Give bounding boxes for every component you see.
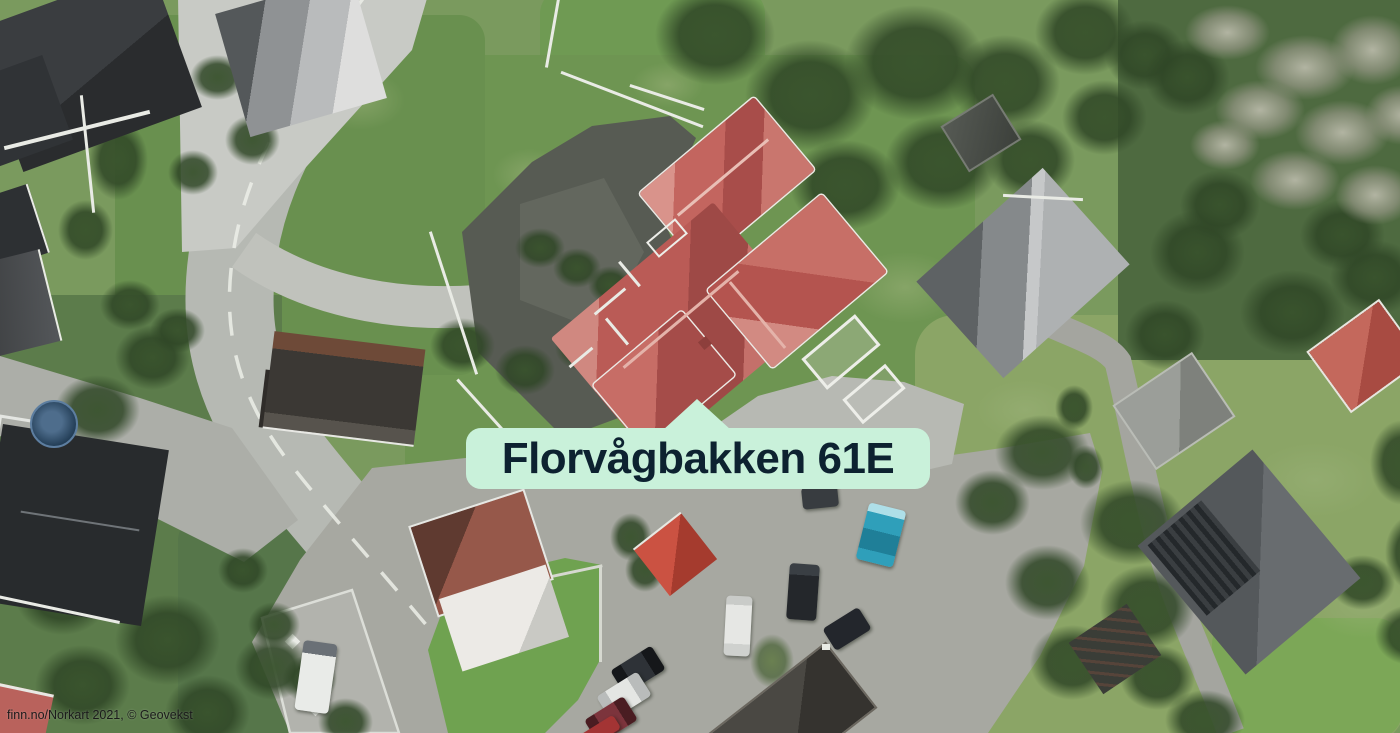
shrub xyxy=(1005,545,1090,620)
hedge-roadside xyxy=(218,548,268,593)
hedge-lane xyxy=(1055,385,1093,430)
rock-outcrop xyxy=(1185,5,1270,60)
hedge-roadside xyxy=(248,602,300,648)
building-black-house xyxy=(0,424,169,626)
rock-outcrop xyxy=(1190,120,1260,170)
building-dark-brown-house xyxy=(263,331,426,447)
garden-bush xyxy=(495,345,555,395)
aerial-map-canvas[interactable]: Florvågbakken 61E finn.no/Norkart 2021, … xyxy=(0,0,1400,733)
white-bus xyxy=(723,595,752,656)
garden-bush xyxy=(150,308,205,353)
driveway-branch xyxy=(244,250,478,307)
dark-van xyxy=(786,563,820,621)
marker-pointer-icon xyxy=(663,399,731,430)
rock-outcrop xyxy=(1250,150,1340,210)
tree xyxy=(1180,170,1260,240)
hedge-lane xyxy=(1068,445,1104,489)
address-label: Florvågbakken 61E xyxy=(466,428,930,489)
address-marker: Florvågbakken 61E xyxy=(466,398,930,489)
tree xyxy=(1062,80,1147,155)
lawn-curb-right xyxy=(599,566,602,662)
trampoline xyxy=(30,400,78,448)
garden-bush xyxy=(58,200,113,260)
garden-bush xyxy=(168,150,218,195)
map-attribution: finn.no/Norkart 2021, © Geovekst xyxy=(7,708,193,722)
parking-post xyxy=(822,644,830,650)
shrub xyxy=(955,470,1030,535)
